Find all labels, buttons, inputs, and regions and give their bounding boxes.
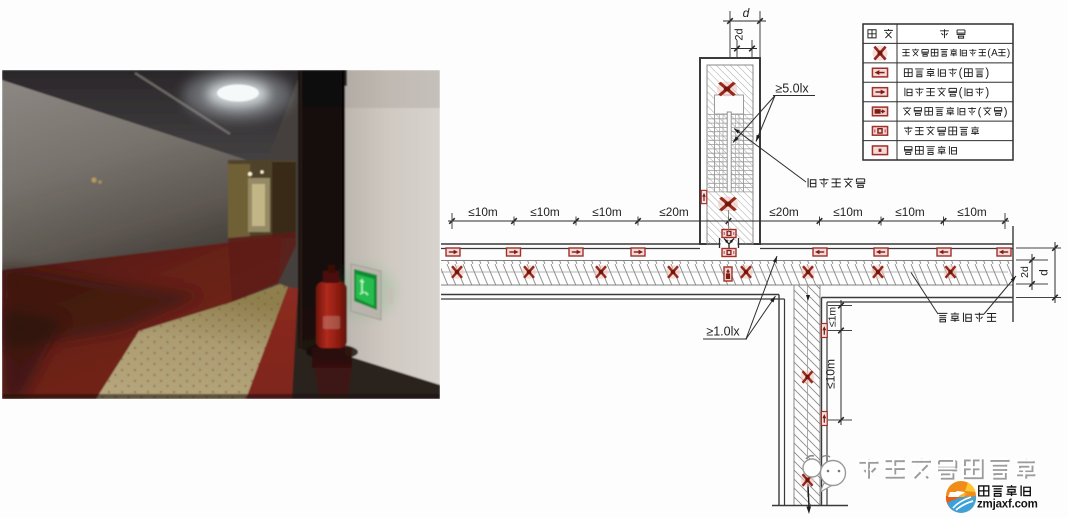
svg-text:≤10m: ≤10m: [468, 205, 498, 219]
svg-text:≤20m: ≤20m: [659, 205, 689, 219]
svg-text:≤10m: ≤10m: [592, 205, 622, 219]
svg-text:≥1.0lx: ≥1.0lx: [706, 325, 740, 339]
svg-text:): ): [985, 87, 989, 99]
svg-text:A: A: [991, 48, 998, 59]
svg-text:2d: 2d: [734, 28, 746, 40]
svg-text:≤10m: ≤10m: [957, 205, 987, 219]
svg-text:): ): [1004, 106, 1008, 118]
svg-text:≤10m: ≤10m: [824, 359, 838, 389]
svg-text:≥5.0lx: ≥5.0lx: [775, 82, 809, 96]
svg-text:≤20m: ≤20m: [769, 205, 799, 219]
svg-text:≤10m: ≤10m: [833, 205, 863, 219]
svg-text:(: (: [959, 87, 963, 99]
svg-text:): ): [1007, 48, 1010, 59]
svg-text:d: d: [743, 6, 750, 20]
svg-text:zmjaxf.com: zmjaxf.com: [977, 499, 1038, 511]
svg-text:≤1m: ≤1m: [827, 307, 839, 328]
svg-text:≤10m: ≤10m: [530, 205, 560, 219]
svg-text:≤10m: ≤10m: [895, 205, 925, 219]
svg-text:d: d: [1037, 269, 1051, 276]
svg-text:): ): [985, 68, 989, 80]
svg-text:(: (: [959, 68, 963, 80]
svg-text:2d: 2d: [1019, 266, 1031, 278]
svg-text:(: (: [978, 106, 982, 118]
